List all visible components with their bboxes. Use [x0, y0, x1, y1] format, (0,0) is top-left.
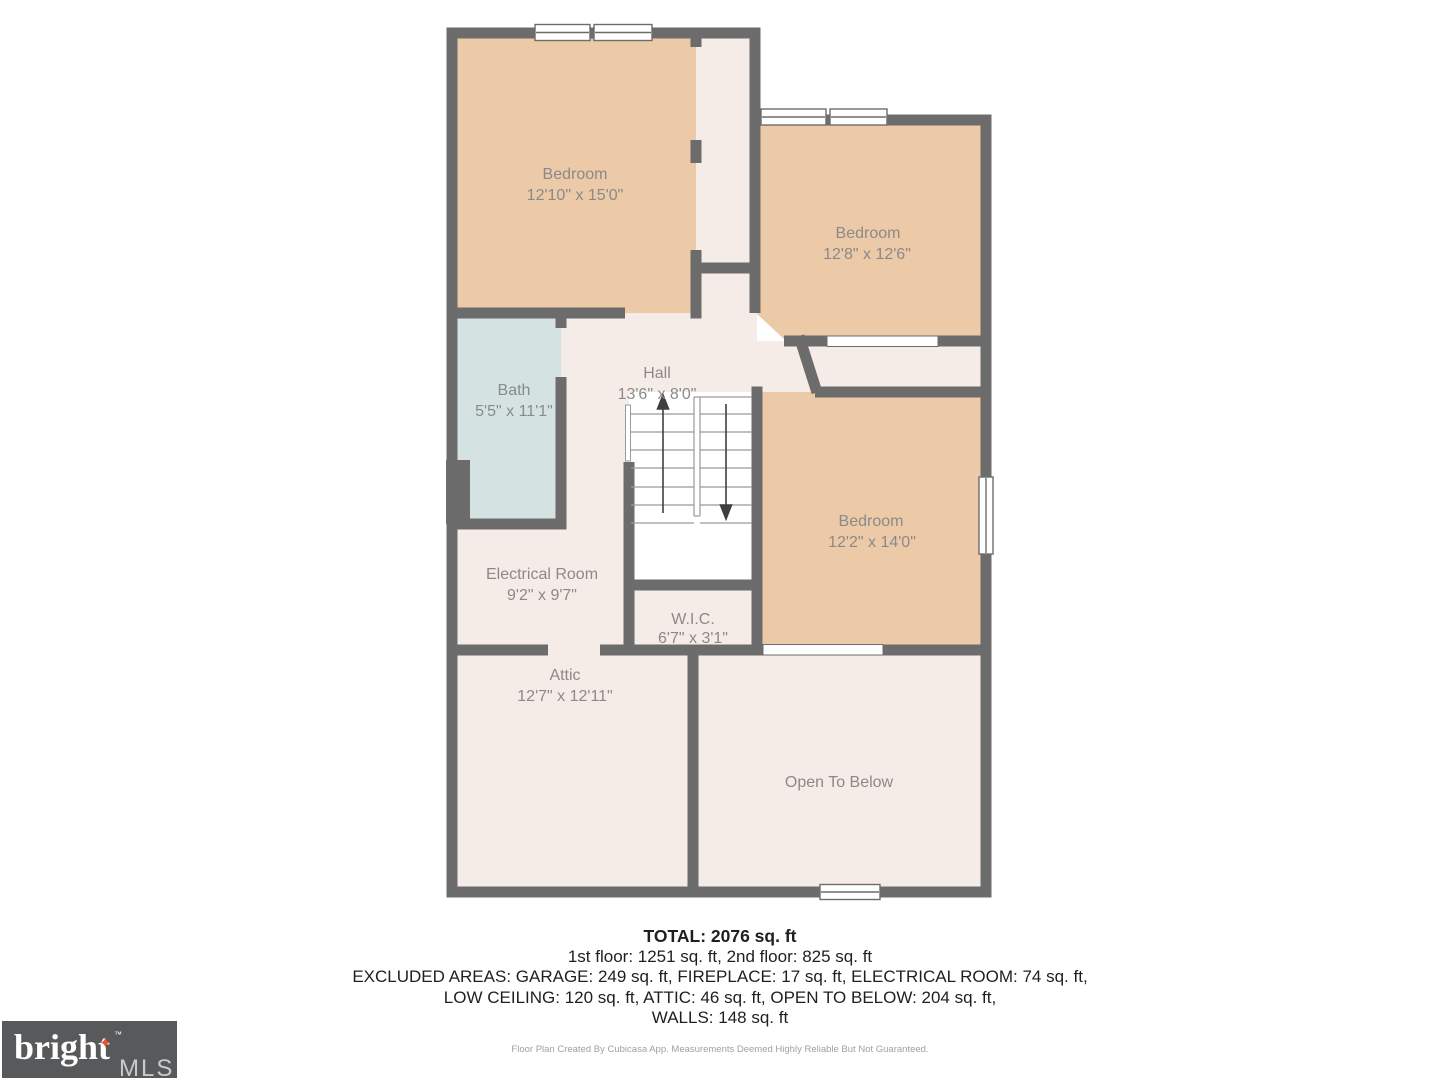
bath-label: Bath	[498, 382, 531, 399]
room-open-to-below	[693, 650, 986, 892]
electrical-label: Electrical Room	[486, 566, 598, 583]
hall-dims: 13'6" x 8'0"	[618, 386, 697, 403]
bedroom2-label: Bedroom	[836, 225, 901, 242]
bedroom2-dims: 12'8" x 12'6"	[823, 246, 911, 263]
sparkle-star-icon: ✦	[99, 1034, 112, 1052]
bedroom1-label: Bedroom	[543, 166, 608, 183]
logo-brand-text: bright	[14, 1026, 110, 1068]
walls-area-line: WALLS: 148 sq. ft	[0, 1008, 1440, 1029]
electrical-dims: 9'2" x 9'7"	[507, 587, 577, 604]
attic-dims: 12'7" x 12'11"	[517, 688, 612, 705]
floor-plan-page: Bedroom 12'10" x 15'0" Bedroom 12'8" x 1…	[0, 0, 1440, 1080]
threshold-bedroom3-bottom	[763, 645, 883, 656]
bedroom1-dims: 12'10" x 15'0"	[527, 187, 624, 204]
area-summary: TOTAL: 2076 sq. ft 1st floor: 1251 sq. f…	[0, 926, 1440, 1029]
disclaimer-text: Floor Plan Created By Cubicasa App. Meas…	[0, 1044, 1440, 1055]
hall-label: Hall	[643, 365, 671, 382]
floor-plan-drawing: Bedroom 12'10" x 15'0" Bedroom 12'8" x 1…	[0, 0, 1440, 1080]
hall-strip-floor	[561, 395, 629, 524]
trademark-symbol: ™	[114, 1030, 122, 1039]
stair-stringer	[626, 405, 631, 461]
hall-nook-floor	[755, 341, 986, 392]
bath-dims: 5'5" x 11'1"	[475, 403, 553, 420]
hall-floor	[561, 313, 757, 395]
bedroom3-label: Bedroom	[839, 513, 904, 530]
wall-bath-notch	[446, 460, 470, 524]
total-area-line: TOTAL: 2076 sq. ft	[0, 926, 1440, 947]
attic-label: Attic	[549, 667, 580, 684]
excluded-areas-line-2: LOW CEILING: 120 sq. ft, ATTIC: 46 sq. f…	[0, 988, 1440, 1009]
wic-label: W.I.C.	[671, 611, 715, 628]
stairwell-floor	[629, 392, 755, 585]
excluded-areas-line-1: EXCLUDED AREAS: GARAGE: 249 sq. ft, FIRE…	[0, 967, 1440, 988]
room-attic	[452, 650, 693, 892]
floors-area-line: 1st floor: 1251 sq. ft, 2nd floor: 825 s…	[0, 947, 1440, 968]
threshold-bedroom2-door	[827, 336, 938, 347]
open-to-below-label: Open To Below	[785, 774, 894, 791]
room-fills	[452, 33, 986, 892]
wic-dims: 6'7" x 3'1"	[658, 630, 728, 647]
bedroom3-dims: 12'2" x 14'0"	[828, 534, 916, 551]
logo-suffix-text: MLS	[119, 1057, 174, 1080]
bright-mls-logo: bright ✦ ™ MLS	[2, 1021, 177, 1078]
